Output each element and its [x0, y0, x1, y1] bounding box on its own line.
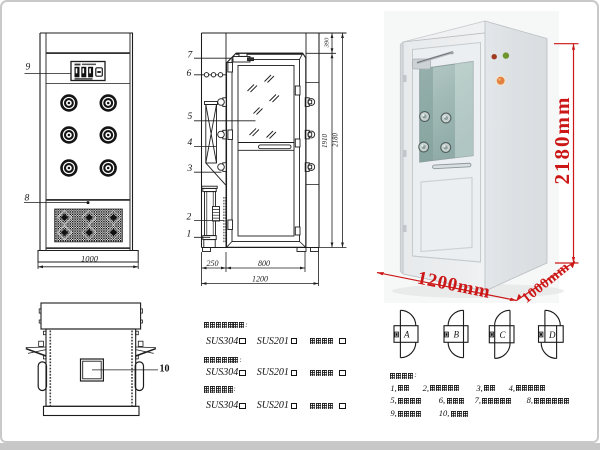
svg-text:A: A: [403, 330, 410, 340]
svg-text:1: 1: [187, 230, 192, 240]
svg-text:250: 250: [207, 259, 219, 268]
svg-text:800: 800: [258, 259, 270, 268]
svg-text:1910: 1910: [321, 134, 329, 149]
svg-text:1200: 1200: [252, 274, 268, 283]
svg-text:390: 390: [324, 37, 331, 49]
svg-text:7: 7: [188, 51, 194, 61]
svg-text:D: D: [548, 330, 556, 340]
svg-text:C: C: [500, 330, 507, 340]
svg-text:B: B: [454, 330, 460, 340]
svg-text:2180mm: 2180mm: [550, 96, 574, 185]
svg-text:6: 6: [187, 69, 192, 79]
svg-text:4: 4: [188, 138, 193, 148]
svg-text:2180: 2180: [332, 133, 340, 148]
svg-text:3: 3: [187, 164, 193, 174]
svg-text:5: 5: [188, 112, 193, 122]
svg-text:9: 9: [26, 63, 31, 73]
svg-text:2: 2: [187, 213, 192, 223]
svg-text:10: 10: [160, 364, 170, 375]
svg-text:8: 8: [25, 194, 30, 204]
svg-text:1000: 1000: [81, 254, 99, 264]
